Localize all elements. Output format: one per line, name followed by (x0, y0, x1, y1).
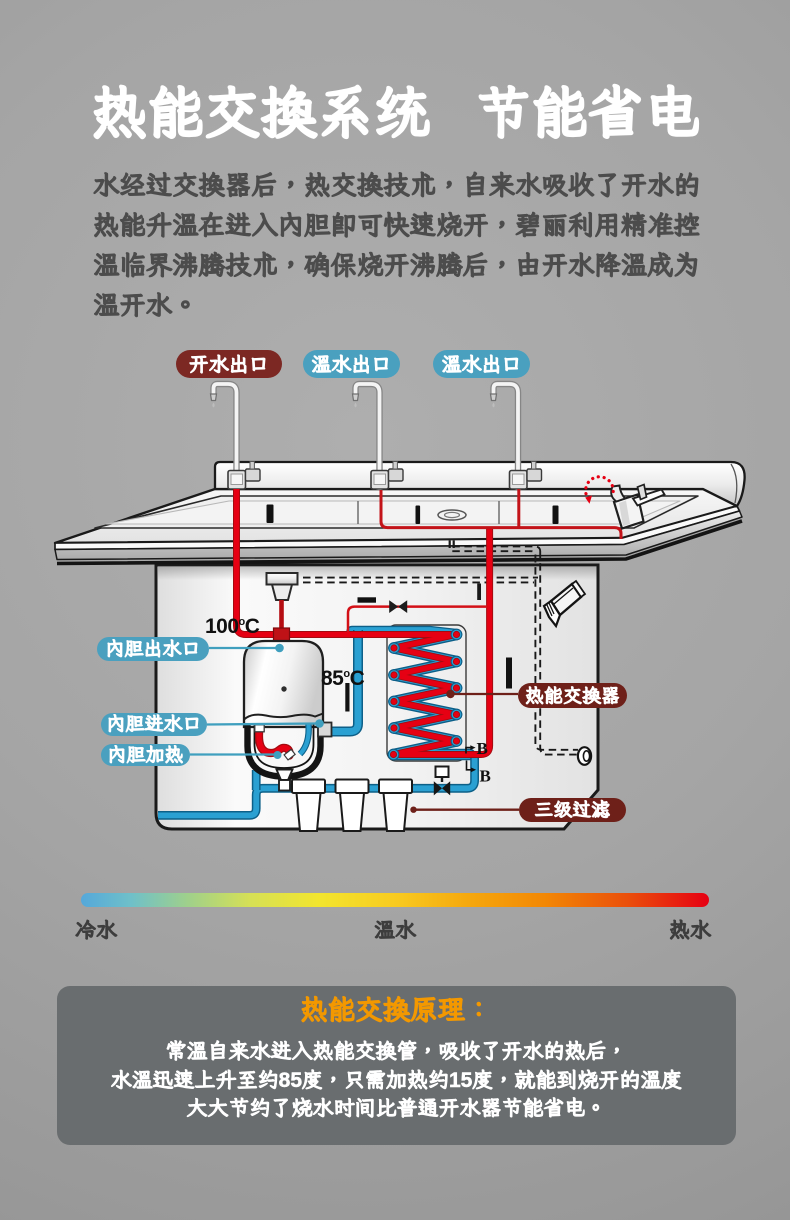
svg-text:B: B (480, 767, 491, 786)
svg-text:B: B (477, 739, 488, 758)
